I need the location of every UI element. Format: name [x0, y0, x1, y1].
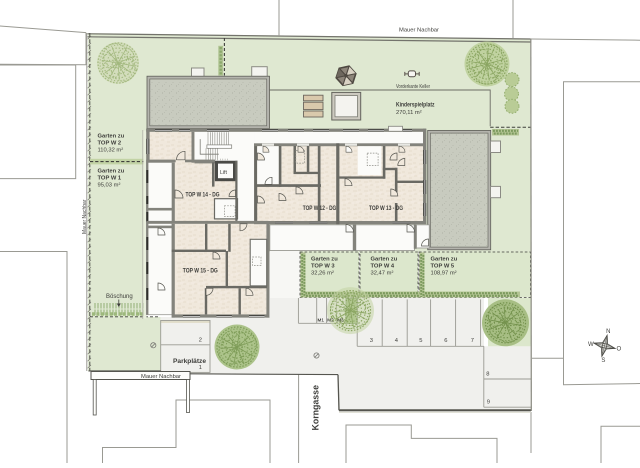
svg-text:M2: M2: [327, 318, 334, 323]
svg-text:TOP W 2: TOP W 2: [98, 141, 122, 147]
svg-text:Kinderspielplatz: Kinderspielplatz: [396, 101, 435, 108]
svg-text:Mauer Nachbar: Mauer Nachbar: [82, 199, 88, 234]
svg-text:Böschung: Böschung: [106, 294, 133, 300]
svg-text:TOP W 13 - DG: TOP W 13 - DG: [369, 205, 403, 212]
svg-text:Korngasse: Korngasse: [311, 385, 321, 431]
svg-text:Garten zu: Garten zu: [98, 134, 125, 140]
svg-text:M1: M1: [318, 318, 325, 323]
svg-text:TOP W 5: TOP W 5: [431, 264, 455, 270]
svg-text:TOP W 14 - DG: TOP W 14 - DG: [186, 191, 220, 198]
svg-text:9: 9: [487, 400, 490, 406]
svg-text:TOP W 1: TOP W 1: [98, 176, 122, 182]
svg-text:32,47 m²: 32,47 m²: [371, 271, 394, 277]
svg-text:Mauer Nachbar: Mauer Nachbar: [399, 28, 439, 34]
svg-text:7: 7: [471, 338, 474, 344]
svg-text:Garten zu: Garten zu: [431, 257, 458, 263]
svg-text:TOP W 4: TOP W 4: [371, 264, 395, 270]
svg-text:2: 2: [199, 338, 202, 344]
svg-text:108,97 m²: 108,97 m²: [431, 271, 457, 277]
svg-text:N: N: [606, 329, 610, 335]
svg-text:W: W: [588, 342, 594, 348]
svg-text:S: S: [601, 358, 605, 364]
svg-text:6: 6: [444, 338, 447, 344]
svg-text:95,03 m²: 95,03 m²: [98, 183, 121, 189]
svg-text:5: 5: [419, 338, 422, 344]
svg-text:32,26 m²: 32,26 m²: [311, 271, 334, 277]
svg-text:Mauer Nachbar: Mauer Nachbar: [141, 374, 181, 380]
svg-text:8: 8: [486, 372, 489, 378]
svg-text:TOP W 12 - DG: TOP W 12 - DG: [303, 205, 337, 212]
svg-text:110,32 m²: 110,32 m²: [98, 148, 124, 154]
svg-text:Garten zu: Garten zu: [371, 257, 398, 263]
svg-text:Parkplätze: Parkplätze: [173, 358, 206, 365]
svg-text:Garten zu: Garten zu: [98, 169, 125, 175]
svg-text:O: O: [617, 346, 622, 352]
svg-text:Vorderkante Keller: Vorderkante Keller: [396, 84, 430, 90]
svg-text:TOP W 15 - DG: TOP W 15 - DG: [183, 268, 218, 275]
svg-text:Garten zu: Garten zu: [311, 257, 338, 263]
svg-text:270,11 m²: 270,11 m²: [396, 110, 422, 116]
svg-text:Lift: Lift: [220, 170, 227, 176]
svg-text:1: 1: [199, 365, 202, 371]
svg-text:TOP W 3: TOP W 3: [311, 264, 335, 270]
svg-text:M3: M3: [337, 318, 344, 323]
svg-text:3: 3: [370, 338, 373, 344]
